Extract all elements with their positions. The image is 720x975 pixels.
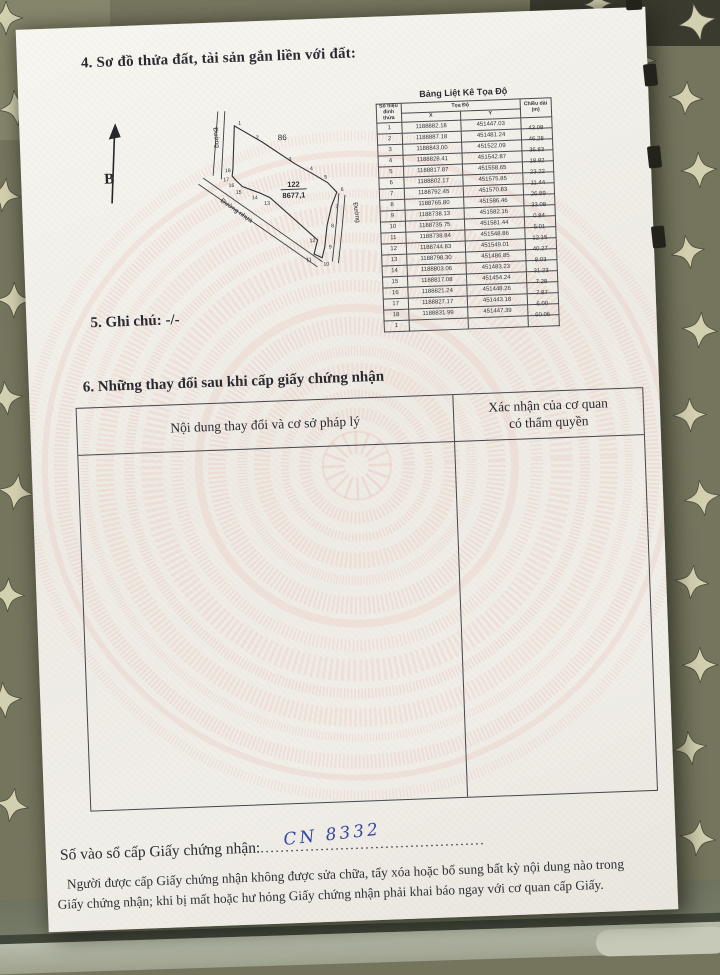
vertex-label-7: 7 [335,204,338,210]
clip-right-3 [651,225,666,248]
vertex-label-3: 3 [289,157,292,163]
changes-table-body [78,435,657,811]
vertex-label-6: 6 [341,187,344,193]
road-right-label: Đường [351,202,361,224]
adjacent-parcel-label: 86 [278,133,288,142]
vertex-label-8: 8 [331,223,334,229]
star-perforation [673,563,710,600]
col-header-vertex: Số hiệu đỉnh thửa [376,103,401,123]
section5-note: 5. Ghi chú: -/- [90,312,180,332]
col-header-length: Chiều dài (m) [520,98,552,118]
plot-diagram: B 86 122 8677,1 [89,110,415,282]
vertex-label-5: 5 [324,175,327,181]
star-perforation [0,680,24,719]
changes-body-right-cell [455,435,657,797]
parcel-id-fraction: 122 8677,1 [280,179,307,200]
star-perforation [668,232,707,271]
coord-cell-x [409,318,469,331]
vertex-label-9: 9 [329,244,332,250]
star-perforation [0,176,23,214]
coord-cell-n: 15 [382,276,407,288]
vertex-label-16: 16 [228,183,234,189]
plot-svg: B 86 122 8677,1 [89,110,415,282]
clip-top [626,0,643,10]
changes-table: Nội dung thay đổi và cơ sở pháp lý Xác n… [76,387,658,812]
star-perforation [671,729,709,767]
star-perforation [675,0,720,44]
changes-col-confirmation-line2: có thẩm quyền [509,413,589,433]
parcel-area-label: 8677,1 [282,190,305,200]
coordinate-table: Bảng Liệt Kê Tọa Độ Số hiệu đỉnh thửa Tọ… [375,84,560,332]
coord-cell-n: 1 [384,320,409,332]
changes-body-left-cell [78,442,467,811]
road-diagonal-edge1 [203,174,322,266]
star-perforation [682,647,719,684]
vertex-label-12: 12 [309,238,315,244]
north-arrow: B [102,123,123,204]
star-perforation [678,818,718,858]
footer-note: Người được cấp Giấy chứng nhận không đượ… [57,853,666,915]
star-perforation [680,310,719,349]
section4-heading: 4. Sơ đồ thửa đất, tài sản gắn liền với … [81,45,357,72]
north-label: B [104,171,115,187]
vertex-label-18: 18 [225,168,231,174]
vertex-label-1: 1 [238,121,241,127]
road-left-label: Đường [211,127,220,149]
table-edge-highlight [596,926,720,956]
vertex-label-2: 2 [256,135,259,141]
star-perforation [0,379,25,416]
serial-label: Số vào sổ cấp Giấy chứng nhận: [60,839,261,863]
coord-cell-n: 17 [383,298,408,310]
coord-table-body: 11188882.18451447.0321188887.18451481.24… [377,117,560,332]
vertex-label-11: 11 [306,257,312,263]
star-perforation [0,785,32,824]
vertex-label-14: 14 [252,195,258,201]
clip-right-1 [643,63,658,86]
parcel-number-label: 122 [287,180,300,189]
vertex-label-10: 10 [323,262,329,268]
clip-right-2 [647,145,662,168]
star-perforation [672,397,707,432]
star-perforation [680,151,718,189]
vertex-label-15: 15 [236,190,242,196]
certificate-page: 4. Sơ đồ thửa đất, tài sản gắn liền với … [16,7,679,932]
coord-cell-y [468,316,528,329]
star-perforation [681,477,720,518]
vertex-label-4: 4 [310,166,313,172]
star-perforation [0,577,26,612]
serial-number-line: Số vào sổ cấp Giấy chứng nhận:..........… [60,831,486,865]
coord-cell-length: 60.06 [527,315,559,327]
star-perforation [668,80,704,116]
vertex-label-17: 17 [223,177,229,183]
vertex-label-13: 13 [264,201,270,207]
changes-col-confirmation: Xác nhận của cơ quan có thẩm quyền [453,388,644,441]
section6-heading: 6. Những thay đổi sau khi cấp giấy chứng… [83,369,385,397]
